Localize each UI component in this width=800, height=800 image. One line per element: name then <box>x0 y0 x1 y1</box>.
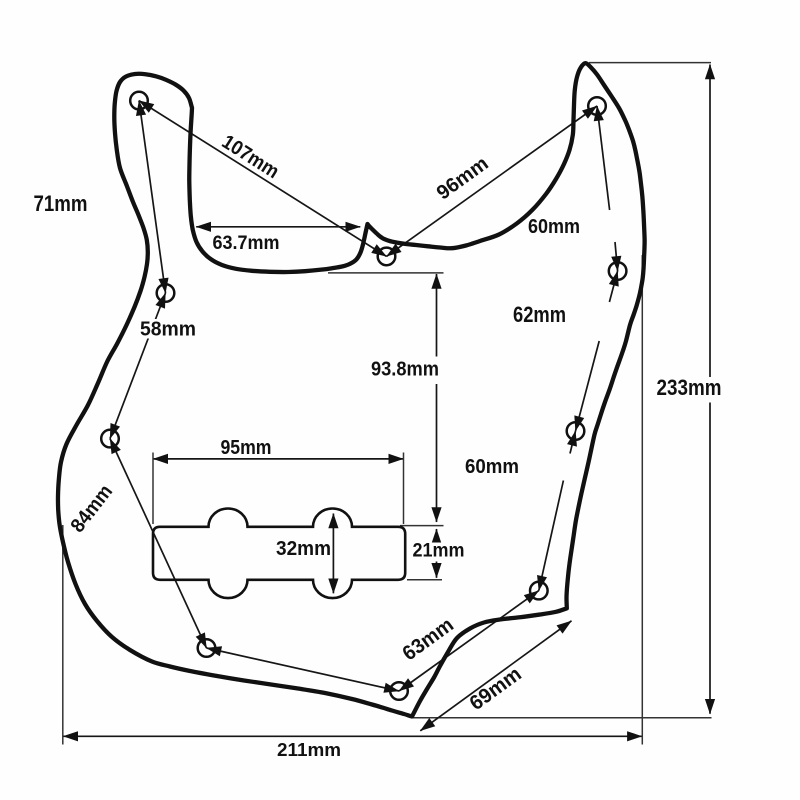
svg-text:60mm: 60mm <box>528 216 580 238</box>
svg-text:233mm: 233mm <box>657 375 722 400</box>
svg-text:60mm: 60mm <box>465 455 519 478</box>
svg-text:211mm: 211mm <box>277 739 341 760</box>
svg-text:21mm: 21mm <box>413 540 465 561</box>
svg-text:93.8mm: 93.8mm <box>371 357 439 380</box>
svg-text:63.7mm: 63.7mm <box>213 233 280 254</box>
svg-text:32mm: 32mm <box>276 538 331 560</box>
svg-text:95mm: 95mm <box>221 437 272 459</box>
svg-text:58mm: 58mm <box>140 319 196 341</box>
svg-text:62mm: 62mm <box>513 302 566 327</box>
svg-text:71mm: 71mm <box>34 191 88 216</box>
